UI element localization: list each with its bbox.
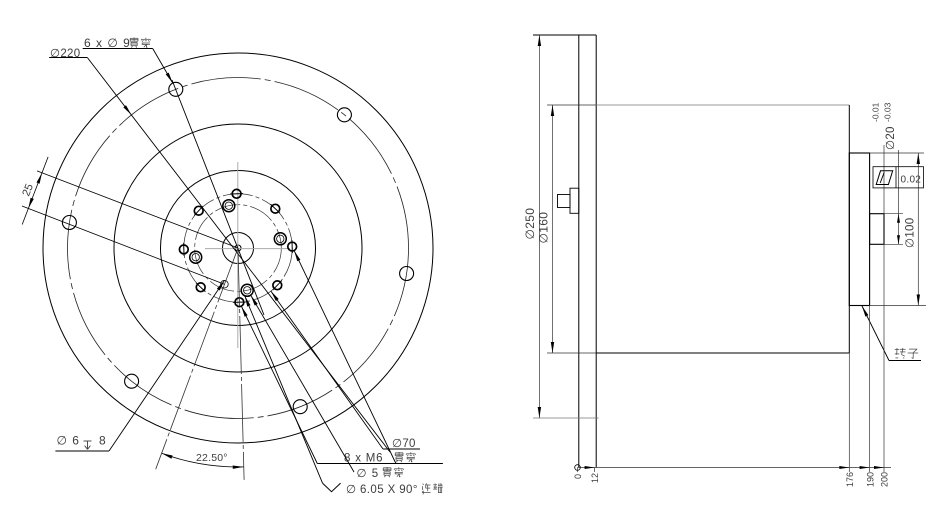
- svg-text:22.50°: 22.50°: [196, 452, 228, 464]
- svg-text:-0.01: -0.01: [871, 102, 881, 122]
- svg-text:∅ 6: ∅ 6: [57, 434, 80, 448]
- svg-text:6 x ∅ 9: 6 x ∅ 9: [84, 36, 131, 50]
- svg-text:-0.03: -0.03: [883, 102, 893, 122]
- svg-text:∅70: ∅70: [392, 438, 416, 450]
- svg-text:8 x M6: 8 x M6: [344, 453, 383, 465]
- svg-text:200: 200: [880, 472, 890, 487]
- svg-text:8: 8: [99, 434, 106, 448]
- svg-text:176: 176: [845, 472, 855, 487]
- svg-text:∅160: ∅160: [537, 212, 551, 244]
- svg-text:∅250: ∅250: [523, 208, 537, 240]
- svg-text:12: 12: [590, 473, 600, 483]
- svg-text:∅220: ∅220: [50, 48, 80, 60]
- svg-text:∅100: ∅100: [905, 218, 917, 248]
- svg-text:0.02: 0.02: [901, 175, 922, 186]
- svg-text:∅ 6.05 X 90° ,: ∅ 6.05 X 90° ,: [346, 484, 425, 496]
- svg-text:190: 190: [866, 472, 876, 487]
- svg-text:0: 0: [573, 474, 583, 479]
- svg-text:∅ 5: ∅ 5: [357, 468, 380, 480]
- svg-text:∅20: ∅20: [885, 126, 897, 150]
